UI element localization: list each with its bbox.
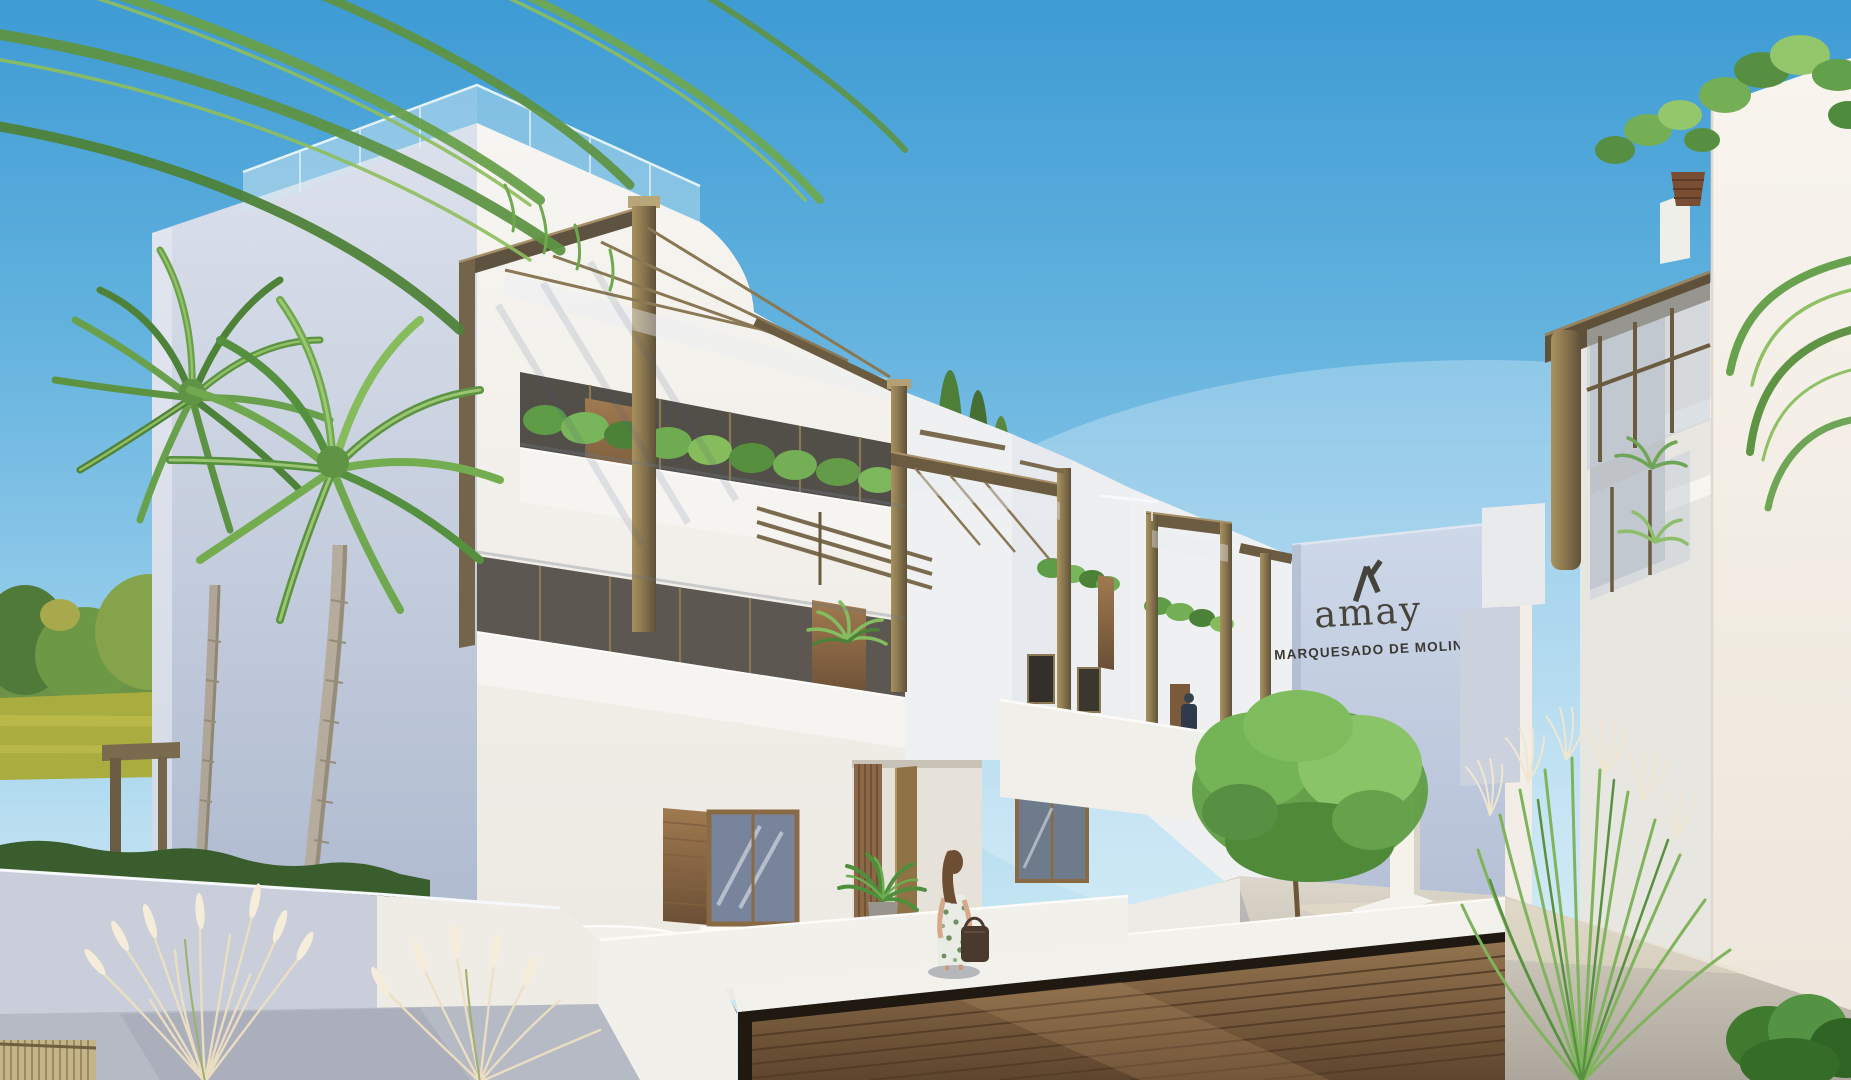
window-right [1017, 795, 1087, 881]
reed-fence [0, 1040, 96, 1080]
wood-panel [1098, 575, 1114, 670]
brand-wordmark: amay [1313, 588, 1423, 637]
window-far-1 [1028, 655, 1054, 703]
architectural-render: amay MARQUESADO DE MOLINS [0, 0, 1851, 1080]
sunlit-wall [1712, 58, 1851, 1080]
window-left [663, 808, 800, 932]
window-far-2 [1078, 668, 1100, 712]
